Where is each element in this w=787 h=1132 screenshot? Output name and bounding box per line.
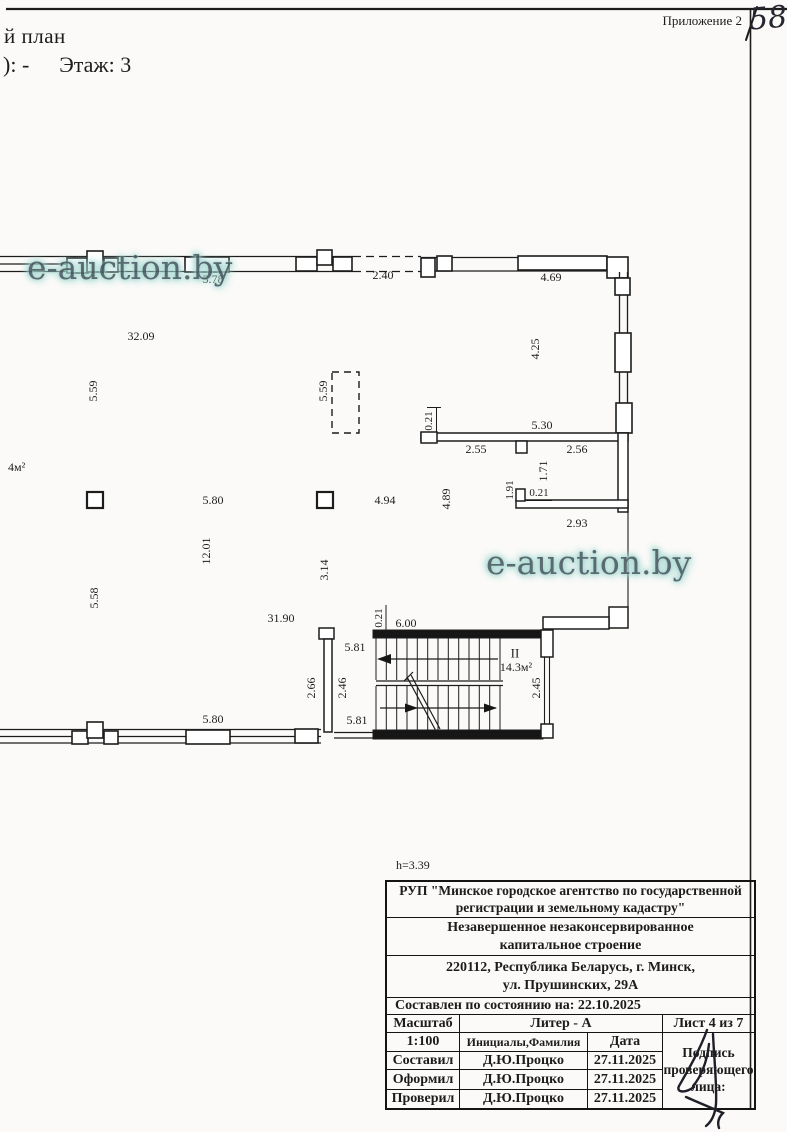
dim-580-mid: 5.80 [203,493,224,507]
dim-293: 2.93 [567,516,588,530]
stair-break-line [404,672,440,731]
name-header-cell: Инициалы,Фамилия [460,1033,588,1052]
stair-treads-upper [376,638,500,680]
dim-558: 5.58 [87,588,101,609]
stairwell [319,605,553,739]
object-type-cell: Незавершенное незаконсервированное капит… [387,918,754,956]
page-title-cut-line1: й план [4,24,66,49]
dimension-labels: 5.78 2.40 4.69 32.09 5.30 2.55 2.56 0.21… [128,268,588,727]
dim-top-469: 4.69 [541,270,562,284]
org-line1: РУП "Минское городское агентство по госу… [399,883,742,898]
title-block-table: РУП "Минское городское агентство по госу… [385,880,756,1110]
watermark-middle: e-auction.by [486,543,691,582]
dim-489: 4.89 [439,489,453,510]
inspector-signature-cell: Подпись проверяющего лица: [663,1033,754,1108]
dim-171: 1.71 [536,461,550,482]
object-line1: Незавершенное незаконсервированное [447,920,693,935]
column-left [87,492,103,508]
row-checked-role: Проверил [387,1090,460,1108]
dim-494: 4.94 [375,493,396,507]
dim-314: 3.14 [317,560,331,581]
dim-600: 6.00 [396,616,417,630]
dim-hall-3209: 32.09 [128,329,155,343]
org-line2: регистрации и земельному кадастру" [456,900,686,915]
right-wall [615,272,632,434]
dim-425: 4.25 [528,339,542,360]
sheet-number-cell: Лист 4 из 7 [663,1015,754,1033]
dim-580-bot: 5.80 [203,712,224,726]
dim-559-left: 5.59 [86,381,100,402]
stair-room-number: II [511,646,520,661]
dim-559-mid: 5.59 [316,381,330,402]
room-area-left-label: 4м² [8,460,26,474]
column-mid [317,492,333,508]
dim-021-room-top: 0.21 [423,411,435,430]
address-line1: 220112, Республика Беларусь, г. Минск, [446,960,695,975]
date-header-cell: Дата [588,1033,663,1052]
liter-cell: Литер - А [460,1015,663,1033]
scale-value-cell: 1:100 [387,1033,460,1052]
dim-021-stair: 0.21 [373,608,385,627]
row-compiled-role: Составил [387,1052,460,1070]
dim-581-bot: 5.81 [347,713,368,727]
address-line2: ул. Прушинских, 29А [503,978,638,993]
row-checked-name: Д.Ю.Процко [460,1090,588,1108]
address-cell: 220112, Республика Беларусь, г. Минск, у… [387,956,754,998]
dim-021-room: 0.21 [529,487,548,499]
row-checked-date: 27.11.2025 [588,1090,663,1108]
dim-581-top: 5.81 [345,640,366,654]
interior-room-walls [421,407,628,629]
dim-191: 1.91 [504,480,516,499]
row-drafted-role: Оформил [387,1070,460,1090]
dim-266: 2.66 [304,678,318,699]
shaft-dashed-outline [332,372,359,433]
row-compiled-name: Д.Ю.Процко [460,1052,588,1070]
right-wall-windows [615,278,632,433]
title-cut-prefix: ): - [3,52,29,77]
dimension-labels-vertical: 4.25 5.59 5.59 0.21 1.71 1.91 4.89 12.01… [86,339,550,699]
org-name-cell: РУП "Минское городское агентство по госу… [387,882,754,918]
stair-treads-lower [376,686,500,730]
stair-room-area: 14.3м² [500,660,533,674]
watermark-top: e-auction.by [27,248,232,287]
dim-246: 2.46 [335,678,349,699]
dim-1201: 12.01 [199,538,213,565]
row-drafted-date: 27.11.2025 [588,1070,663,1090]
object-line2: капитальное строение [500,938,642,953]
page-title-cut-line2: ): -Этаж: 3 [3,52,131,78]
scale-label-cell: Масштаб [387,1015,460,1033]
stair-direction-arrows [377,654,498,713]
handwritten-sheet-number: 58 [748,0,787,38]
dim-256: 2.56 [567,442,588,456]
height-note: h=3.39 [396,858,430,872]
row-drafted-name: Д.Ю.Процко [460,1070,588,1090]
floor-label: Этаж: 3 [59,52,131,77]
dim-255: 2.55 [466,442,487,456]
bottom-wall [0,722,321,744]
row-compiled-date: 27.11.2025 [588,1052,663,1070]
as-of-date-cell: Составлен по состоянию на: 22.10.2025 [387,998,754,1015]
scanned-floor-plan-page: 5.78 2.40 4.69 32.09 5.30 2.55 2.56 0.21… [0,0,787,1132]
appendix-label: Приложение 2 [600,13,742,29]
dim-245: 2.45 [529,678,543,699]
bottom-wall-windows [72,722,318,744]
dim-530: 5.30 [532,418,553,432]
dim-3190: 31.90 [268,611,295,625]
dim-top-240: 2.40 [373,268,394,282]
